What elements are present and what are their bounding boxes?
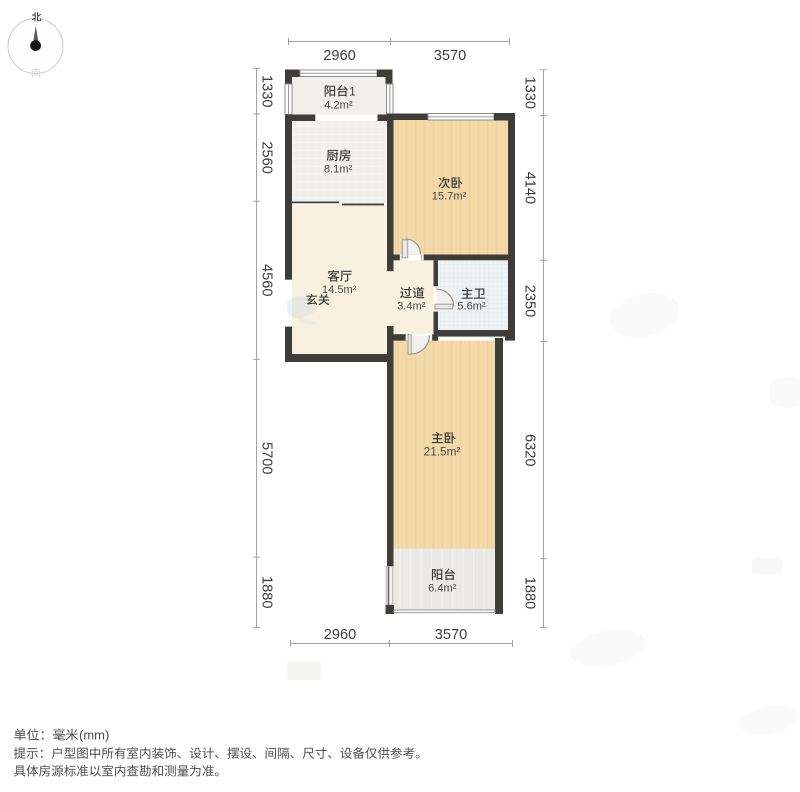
svg-text:2960: 2960: [323, 48, 355, 64]
svg-text:3.4m²: 3.4m²: [397, 300, 426, 312]
svg-text:5.6m²: 5.6m²: [457, 300, 486, 312]
svg-text:5700: 5700: [259, 442, 275, 474]
svg-text:4140: 4140: [522, 172, 538, 204]
svg-text:(mm): (mm): [79, 728, 109, 743]
svg-text:3570: 3570: [435, 627, 467, 643]
svg-text:2960: 2960: [324, 627, 356, 643]
svg-text:1330: 1330: [522, 76, 538, 108]
svg-text:14.5m²: 14.5m²: [322, 284, 357, 296]
svg-text:3570: 3570: [434, 48, 466, 64]
svg-text:21.5m²: 21.5m²: [424, 444, 461, 458]
svg-text:1: 1: [349, 87, 355, 99]
svg-text:8.1m²: 8.1m²: [324, 163, 353, 175]
svg-text:6320: 6320: [522, 434, 538, 466]
svg-text:15.7m²: 15.7m²: [432, 191, 467, 203]
svg-text:6.4m²: 6.4m²: [428, 582, 457, 594]
svg-text:1330: 1330: [259, 75, 275, 107]
svg-text:4560: 4560: [259, 264, 275, 296]
svg-text:2560: 2560: [259, 141, 275, 173]
svg-text:1880: 1880: [259, 576, 275, 608]
svg-text:1880: 1880: [522, 577, 538, 609]
svg-text:2350: 2350: [522, 285, 538, 317]
svg-text:4.2m²: 4.2m²: [324, 100, 353, 112]
